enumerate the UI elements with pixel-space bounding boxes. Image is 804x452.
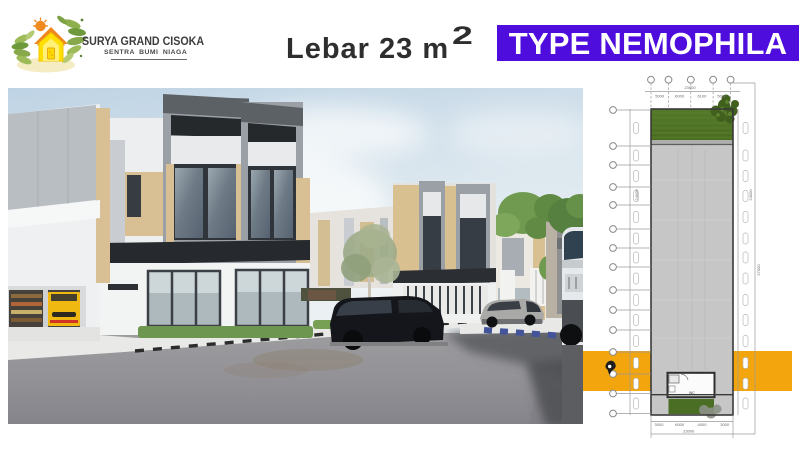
svg-text:24000: 24000 <box>634 189 639 201</box>
svg-text:3000: 3000 <box>655 422 665 427</box>
svg-text:27000: 27000 <box>756 264 761 276</box>
svg-text:4000: 4000 <box>698 422 708 427</box>
svg-text:23000: 23000 <box>683 429 695 434</box>
svg-text:23000: 23000 <box>684 85 696 90</box>
svg-text:6000: 6000 <box>675 422 685 427</box>
svg-text:5000: 5000 <box>717 94 727 99</box>
svg-text:3000: 3000 <box>720 422 730 427</box>
svg-text:6100: 6100 <box>697 94 707 99</box>
svg-text:5000: 5000 <box>655 94 665 99</box>
svg-text:24000: 24000 <box>748 189 753 201</box>
svg-text:6000: 6000 <box>675 94 685 99</box>
